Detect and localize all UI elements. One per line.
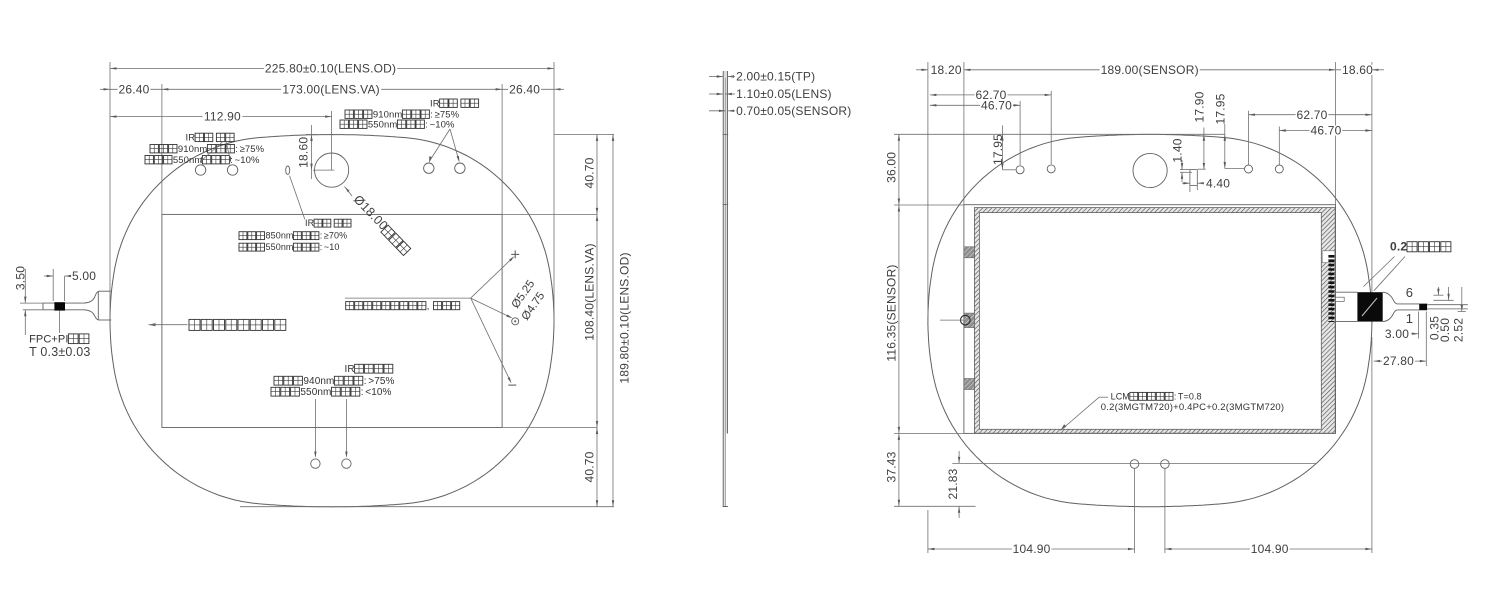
svg-text:173.00(LENS.VA): 173.00(LENS.VA) [282,82,380,96]
svg-text:5.00: 5.00 [72,269,96,283]
svg-text:18.60: 18.60 [297,137,311,168]
svg-text:850nm: 850nm [266,231,294,241]
svg-text:940nm: 940nm [303,376,334,387]
svg-text:3.00: 3.00 [1385,327,1409,341]
svg-text:17.95: 17.95 [991,134,1005,165]
svg-text:6: 6 [1406,285,1413,300]
svg-text:104.90: 104.90 [1013,542,1051,556]
svg-text::: : [1174,391,1177,401]
svg-text:0.50: 0.50 [1438,318,1452,342]
svg-text:26.40: 26.40 [118,82,149,96]
svg-text:27.80: 27.80 [1383,354,1414,368]
svg-text::: : [320,231,323,241]
svg-text:37.43: 37.43 [885,451,899,482]
svg-text:36.00: 36.00 [885,152,899,183]
svg-text:550nm: 550nm [173,155,203,166]
svg-text:17.95: 17.95 [1214,93,1228,124]
svg-text:IR: IR [305,218,315,228]
svg-text::: : [235,144,238,155]
svg-text:910nm: 910nm [178,144,208,155]
svg-text:LCM: LCM [1111,391,1130,401]
svg-text:26.40: 26.40 [509,82,540,96]
svg-text:0.2(3MGTM720)+0.4PC+0.2(3MGTM7: 0.2(3MGTM720)+0.4PC+0.2(3MGTM720) [1101,402,1284,413]
svg-text:~10: ~10 [324,242,340,252]
svg-text:550nm: 550nm [266,242,294,252]
svg-text:225.80±0.10(LENS.OD): 225.80±0.10(LENS.OD) [265,62,396,76]
svg-text::: : [364,376,367,387]
svg-text:116.35(SENSOR): 116.35(SENSOR) [885,264,899,361]
svg-text:21.83: 21.83 [946,468,960,499]
svg-text:40.70: 40.70 [583,451,597,482]
svg-text:2.00±0.15(TP): 2.00±0.15(TP) [736,70,815,84]
svg-text:T 0.3±0.03: T 0.3±0.03 [29,345,90,359]
svg-text:FPC+PI: FPC+PI [29,334,68,346]
svg-text:≥70%: ≥70% [324,231,347,241]
svg-text:,: , [427,301,430,311]
svg-text:T=0.8: T=0.8 [1178,391,1202,401]
svg-text:17.90: 17.90 [1193,91,1207,122]
svg-text:IR: IR [186,133,196,144]
svg-text:3.50: 3.50 [14,266,28,290]
svg-text::: : [425,119,428,130]
svg-text:≥75%: ≥75% [240,144,265,155]
svg-text:550nm: 550nm [300,387,331,398]
svg-text:~10%: ~10% [235,155,260,166]
svg-text:18.20: 18.20 [931,63,962,77]
svg-text:550nm: 550nm [368,119,398,130]
svg-text:189.80±0.10(LENS.OD): 189.80±0.10(LENS.OD) [618,252,632,383]
svg-text:18.60: 18.60 [1342,63,1373,77]
svg-text:40.70: 40.70 [583,157,597,188]
svg-text::: : [361,387,364,398]
svg-text:1.10±0.05(LENS): 1.10±0.05(LENS) [736,87,832,101]
svg-text:112.90: 112.90 [204,110,241,124]
svg-text:1: 1 [1406,311,1413,326]
svg-text:104.90: 104.90 [1251,542,1289,556]
svg-text:IR: IR [345,364,355,375]
svg-text:1.40: 1.40 [1171,138,1185,162]
svg-text:2.52: 2.52 [1452,318,1466,342]
svg-text:189.00(SENSOR): 189.00(SENSOR) [1101,63,1199,77]
svg-text:108.40(LENS.VA): 108.40(LENS.VA) [583,243,597,341]
svg-text::: : [320,242,323,252]
svg-text:~10%: ~10% [430,119,455,130]
svg-text:>75%: >75% [368,376,394,387]
svg-text:0.2: 0.2 [1390,240,1407,254]
svg-text:0.70±0.05(SENSOR): 0.70±0.05(SENSOR) [736,104,851,118]
svg-text:46.70: 46.70 [1310,124,1341,138]
svg-text:4.40: 4.40 [1206,176,1230,190]
svg-text:<10%: <10% [365,387,391,398]
svg-text:46.70: 46.70 [981,98,1012,112]
svg-text:62.70: 62.70 [1296,108,1327,122]
svg-text:IR: IR [430,98,440,109]
